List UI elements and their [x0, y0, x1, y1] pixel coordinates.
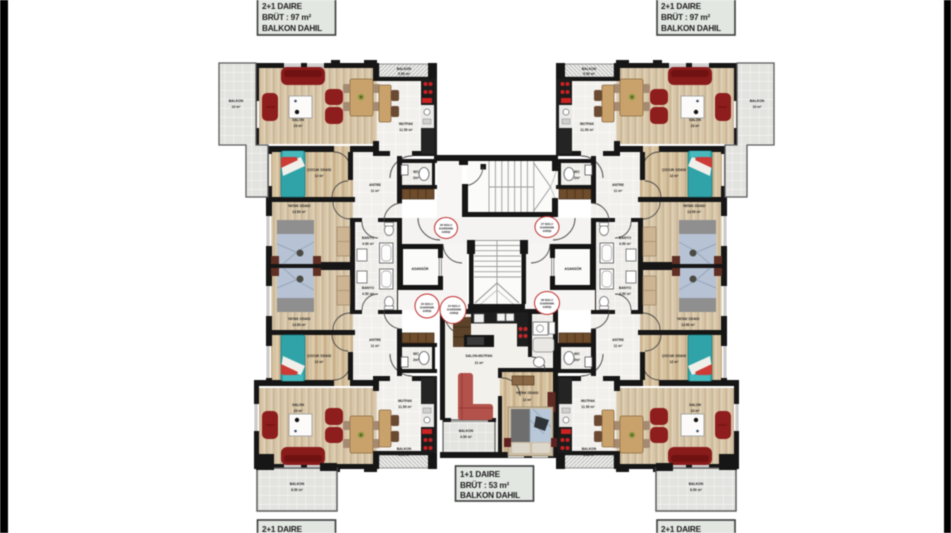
svg-text:YATAK ODASI: YATAK ODASI: [516, 391, 539, 395]
svg-text:BRÜT : 97 m²: BRÜT : 97 m²: [262, 12, 311, 22]
svg-text:MUTFAK: MUTFAK: [580, 122, 595, 126]
svg-text:4.50 m²: 4.50 m²: [619, 242, 632, 246]
svg-text:4.50 m²: 4.50 m²: [460, 435, 473, 439]
svg-text:23 m²: 23 m²: [691, 124, 701, 128]
svg-text:SALON: SALON: [292, 403, 304, 407]
svg-text:11 m²: 11 m²: [371, 189, 381, 193]
svg-text:1+1 DAIRE: 1+1 DAIRE: [460, 470, 501, 479]
svg-text:YATAK ODASI: YATAK ODASI: [677, 317, 700, 321]
svg-text:BANYO: BANYO: [619, 286, 632, 290]
svg-text:2+1 DAIRE: 2+1 DAIRE: [661, 525, 702, 533]
svg-text:23 m²: 23 m²: [294, 409, 304, 413]
svg-text:11.50 m²: 11.50 m²: [399, 128, 413, 132]
svg-text:ANTRE: ANTRE: [612, 183, 624, 187]
svg-text:GIRIŞI: GIRIŞI: [543, 229, 552, 233]
svg-text:2m²: 2m²: [574, 358, 581, 362]
svg-text:11 m²: 11 m²: [371, 344, 381, 348]
svg-text:GIRIŞI: GIRIŞI: [423, 309, 432, 313]
svg-text:2m²: 2m²: [574, 176, 581, 180]
svg-text:BALKON: BALKON: [582, 67, 597, 71]
svg-text:BALKON: BALKON: [459, 429, 474, 433]
svg-text:11.50 m²: 11.50 m²: [398, 405, 412, 409]
svg-text:BALKON: BALKON: [689, 482, 704, 486]
svg-text:ÇOCUK ODASI: ÇOCUK ODASI: [307, 354, 331, 358]
svg-text:BALKON DAHIL: BALKON DAHIL: [661, 24, 721, 33]
svg-text:5.50 m²: 5.50 m²: [398, 453, 411, 457]
svg-text:YATAK ODASI: YATAK ODASI: [288, 204, 311, 208]
svg-text:MUTFAK: MUTFAK: [398, 399, 413, 403]
svg-text:11 m²: 11 m²: [614, 344, 624, 348]
svg-text:WC: WC: [413, 352, 419, 356]
svg-text:BANYO: BANYO: [362, 236, 375, 240]
svg-text:ANTRE: ANTRE: [369, 338, 381, 342]
svg-text:5.50 m²: 5.50 m²: [583, 453, 596, 457]
svg-text:WC: WC: [413, 170, 419, 174]
svg-text:12 m²: 12 m²: [670, 360, 680, 364]
svg-text:BALKON: BALKON: [290, 482, 305, 486]
svg-text:GIRIŞI: GIRIŞI: [442, 230, 451, 234]
svg-text:ASANSÖR: ASANSÖR: [412, 266, 430, 271]
svg-text:SALON: SALON: [689, 403, 701, 407]
svg-text:12 m²: 12 m²: [315, 360, 325, 364]
svg-text:BALKON DAHIL: BALKON DAHIL: [262, 24, 322, 33]
svg-text:GIRIŞI: GIRIŞI: [543, 305, 552, 309]
svg-text:BALKON: BALKON: [397, 67, 412, 71]
svg-text:13.50 m²: 13.50 m²: [681, 323, 695, 327]
svg-text:2+1 DAIRE: 2+1 DAIRE: [661, 2, 702, 11]
svg-text:BANYO: BANYO: [619, 236, 632, 240]
svg-text:11.50 m²: 11.50 m²: [581, 405, 595, 409]
svg-text:BANYO: BANYO: [362, 286, 375, 290]
svg-text:13.50 m²: 13.50 m²: [292, 323, 306, 327]
svg-text:YATAK ODASI: YATAK ODASI: [288, 317, 311, 321]
svg-text:2+1 DAIRE: 2+1 DAIRE: [262, 2, 303, 11]
svg-text:ÇOCUK ODASI: ÇOCUK ODASI: [307, 168, 331, 172]
svg-text:12 m²: 12 m²: [315, 174, 325, 178]
svg-text:2+1 DAIRE: 2+1 DAIRE: [262, 525, 303, 533]
svg-text:ASANSÖR: ASANSÖR: [565, 266, 583, 271]
svg-text:BALKON: BALKON: [750, 99, 765, 103]
svg-text:SALON: SALON: [292, 118, 304, 122]
svg-text:BALKON: BALKON: [397, 447, 412, 451]
svg-text:5.50 m²: 5.50 m²: [583, 72, 596, 76]
svg-text:BALKON: BALKON: [582, 447, 597, 451]
svg-text:11.50 m²: 11.50 m²: [580, 128, 594, 132]
svg-text:23 m²: 23 m²: [294, 124, 304, 128]
svg-text:11 m²: 11 m²: [614, 189, 624, 193]
svg-text:BRÜT : 53 m²: BRÜT : 53 m²: [460, 480, 509, 490]
svg-text:GIRIŞI: GIRIŞI: [450, 311, 459, 315]
svg-text:MUTFAK: MUTFAK: [399, 122, 414, 126]
svg-text:BRÜT : 97 m²: BRÜT : 97 m²: [661, 12, 710, 22]
svg-text:2m²: 2m²: [413, 358, 420, 362]
svg-text:21 m²: 21 m²: [475, 361, 485, 365]
svg-text:SALON-MUTFAK: SALON-MUTFAK: [465, 354, 493, 358]
svg-text:13.50 m²: 13.50 m²: [292, 210, 306, 214]
svg-text:4.50 m²: 4.50 m²: [619, 292, 632, 296]
svg-text:13.50 m²: 13.50 m²: [687, 210, 701, 214]
svg-text:12 m²: 12 m²: [523, 398, 533, 402]
svg-text:23 m²: 23 m²: [691, 409, 701, 413]
svg-text:WC: WC: [574, 352, 580, 356]
svg-text:WC: WC: [574, 170, 580, 174]
svg-text:10 m²: 10 m²: [753, 105, 763, 109]
svg-text:8.50 m²: 8.50 m²: [690, 488, 703, 492]
svg-text:2m²: 2m²: [413, 176, 420, 180]
svg-text:SALON: SALON: [689, 118, 701, 122]
svg-text:ANTRE: ANTRE: [369, 183, 381, 187]
svg-text:4.50 m²: 4.50 m²: [362, 242, 375, 246]
svg-text:BALKON: BALKON: [229, 99, 244, 103]
svg-text:BALKON DAHIL: BALKON DAHIL: [460, 491, 520, 500]
svg-text:MUTFAK: MUTFAK: [581, 399, 596, 403]
svg-text:4.50 m²: 4.50 m²: [362, 292, 375, 296]
svg-text:ÇOCUK ODASI: ÇOCUK ODASI: [662, 168, 686, 172]
svg-text:12 m²: 12 m²: [670, 174, 680, 178]
svg-text:10 m²: 10 m²: [232, 105, 242, 109]
svg-text:ANTRE: ANTRE: [612, 338, 624, 342]
svg-text:ÇOCUK ODASI: ÇOCUK ODASI: [662, 354, 686, 358]
svg-text:5.50 m²: 5.50 m²: [398, 72, 411, 76]
svg-text:YATAK ODASI: YATAK ODASI: [683, 204, 706, 208]
svg-text:8.50 m²: 8.50 m²: [291, 488, 304, 492]
